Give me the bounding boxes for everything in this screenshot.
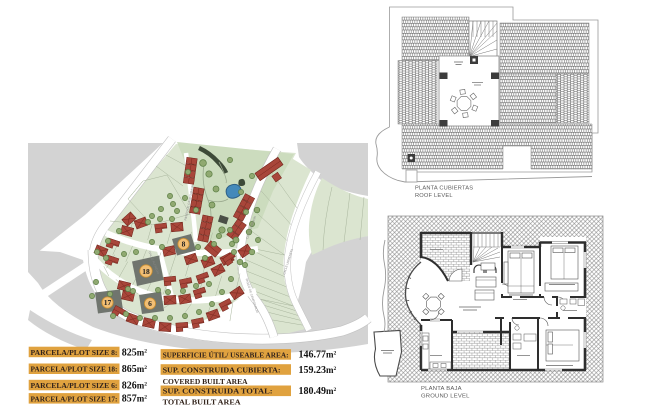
svg-text:ROOF LEVEL: ROOF LEVEL — [415, 193, 453, 199]
svg-text:GROUND LEVEL: GROUND LEVEL — [421, 394, 470, 400]
svg-text:PARCELA/PLOT SIZE 8:: PARCELA/PLOT SIZE 8: — [31, 348, 118, 357]
svg-text:PARCELA/PLOT SIZE 17:: PARCELA/PLOT SIZE 17: — [31, 394, 118, 403]
svg-text:180.49m2: 180.49m2 — [299, 386, 337, 397]
svg-text:18: 18 — [142, 267, 150, 276]
svg-text:COVERED BUILT AREA: COVERED BUILT AREA — [163, 377, 249, 386]
svg-text:PARCELA/PLOT SIZE 6:: PARCELA/PLOT SIZE 6: — [31, 381, 118, 390]
svg-text:SUPERFICIE ÚTIL/ USEABLE AREA:: SUPERFICIE ÚTIL/ USEABLE AREA: — [163, 349, 289, 359]
svg-text:857m2: 857m2 — [122, 394, 148, 405]
svg-text:SUP. CONSTRUIDA CUBIERTA:: SUP. CONSTRUIDA CUBIERTA: — [163, 365, 281, 374]
svg-text:8: 8 — [182, 240, 186, 249]
svg-text:6: 6 — [148, 299, 152, 308]
svg-text:PLANTA BAJA: PLANTA BAJA — [421, 386, 462, 392]
svg-text:146.77m2: 146.77m2 — [299, 350, 337, 361]
svg-text:PARCELA/PLOT SIZE 18:: PARCELA/PLOT SIZE 18: — [31, 365, 118, 374]
svg-text:865m2: 865m2 — [122, 364, 148, 375]
svg-text:TOTAL BUILT AREA: TOTAL BUILT AREA — [163, 398, 242, 407]
svg-text:SUP. CONSTRUIDA TOTAL:: SUP. CONSTRUIDA TOTAL: — [163, 387, 273, 396]
svg-text:17: 17 — [104, 298, 112, 307]
svg-text:825m2: 825m2 — [122, 347, 148, 358]
svg-text:159.23m2: 159.23m2 — [299, 365, 337, 376]
svg-text:826m2: 826m2 — [122, 380, 148, 391]
svg-text:PLANTA CUBIERTAS: PLANTA CUBIERTAS — [415, 186, 473, 192]
